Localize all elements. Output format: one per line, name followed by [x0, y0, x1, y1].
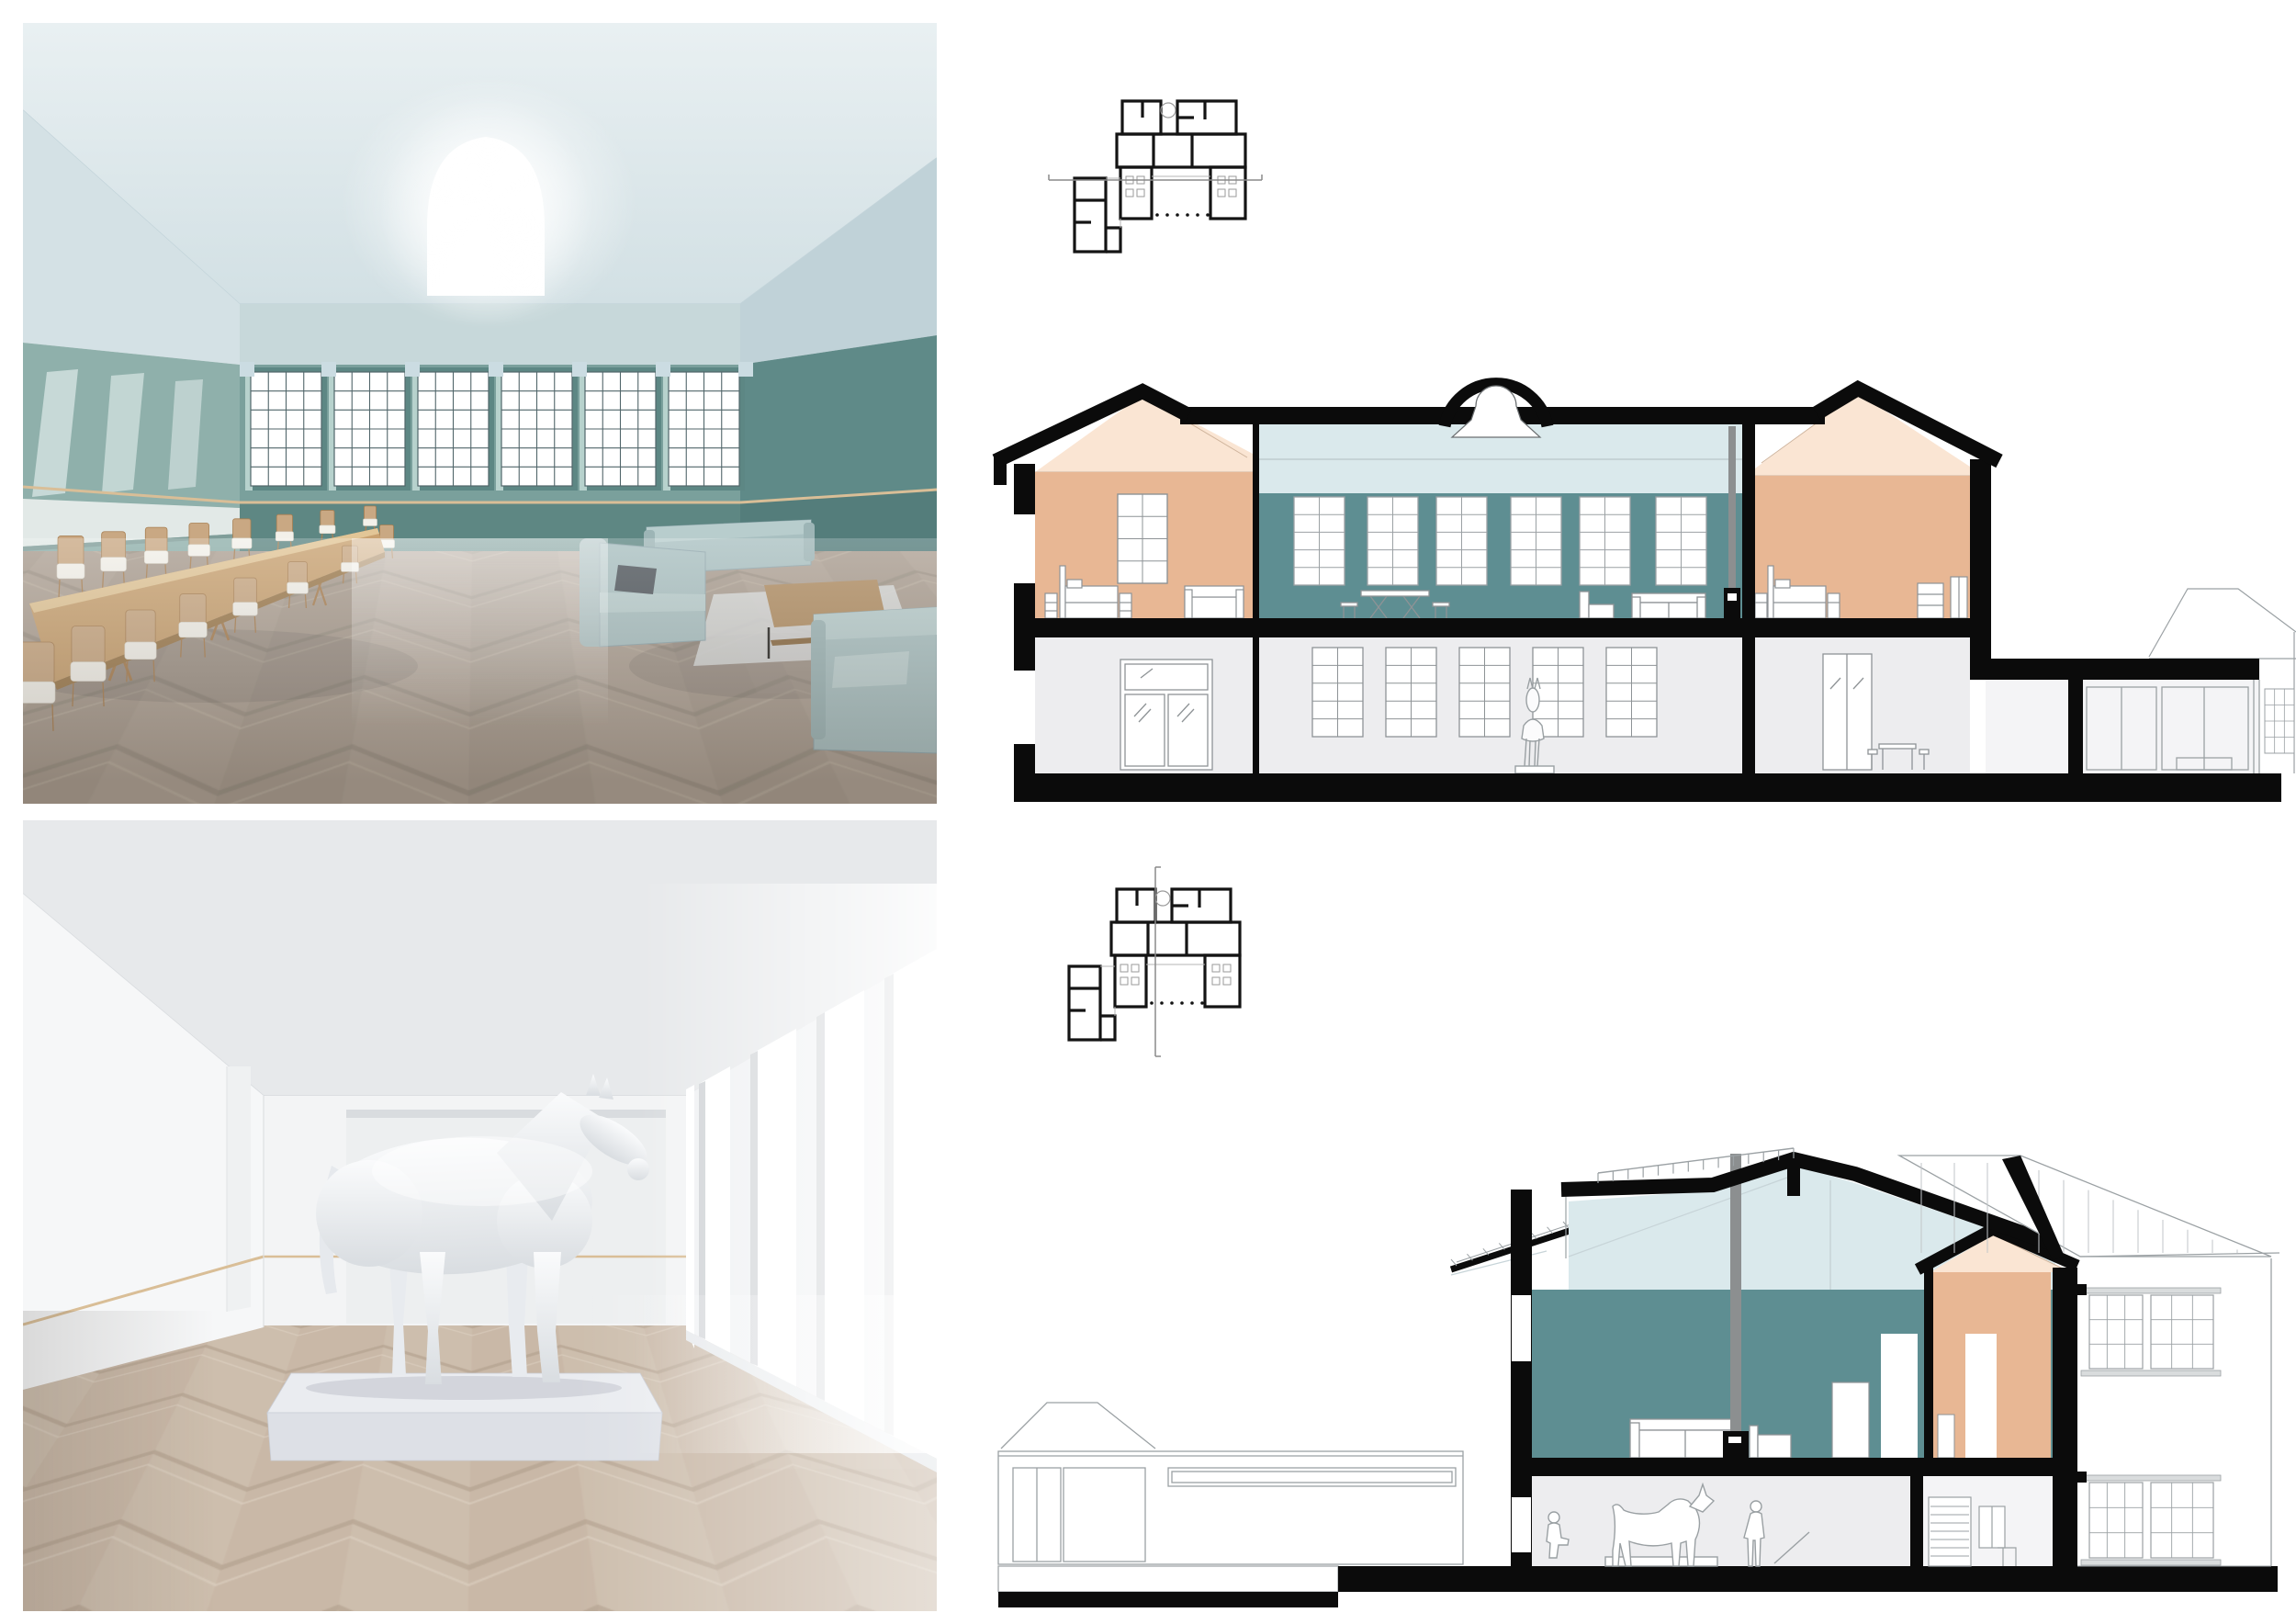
annex-right [1986, 680, 2259, 773]
window-wall-right [686, 949, 937, 1472]
hall-cabinet [1832, 1382, 1869, 1458]
left-wall [23, 894, 264, 1390]
panel-render-gallery-horse [23, 820, 937, 1611]
sofa-left [580, 538, 705, 647]
right-elevation [2077, 1258, 2271, 1566]
horse-sculpture [313, 1074, 655, 1384]
panel-section-cross [992, 863, 2296, 1624]
key-plan [1075, 101, 1245, 252]
sofa-right-foreground [811, 607, 937, 753]
lower-gallery [1532, 1476, 1910, 1566]
panel-section-longitudinal [992, 83, 2296, 818]
cross-section-drawing [992, 863, 2296, 1624]
lower-french-door [1120, 660, 1212, 770]
horse-shadow [306, 1376, 622, 1400]
presentation-board [0, 0, 2296, 1624]
panel-render-dining-hall [23, 23, 937, 804]
standing-person-head [1750, 1501, 1761, 1512]
hall-opening [1881, 1334, 1918, 1458]
bedroom-window [1118, 494, 1167, 583]
annex-slab [998, 1566, 1338, 1592]
annex-elevation [998, 1403, 1463, 1564]
key-plan [1069, 889, 1240, 1040]
elevation-windows [2089, 1295, 2213, 1558]
seated-person-head [1548, 1512, 1559, 1523]
longitudinal-section-drawing [992, 83, 2296, 818]
background-building-window [2265, 689, 2294, 753]
section-drawing [994, 384, 2296, 802]
key-plan-mount [1069, 889, 1240, 1040]
window-slit [686, 1085, 694, 1348]
gallery-walls-and-sculpture [23, 820, 937, 1611]
section-drawing [998, 1148, 2279, 1607]
dining-hall-furniture [23, 23, 937, 804]
